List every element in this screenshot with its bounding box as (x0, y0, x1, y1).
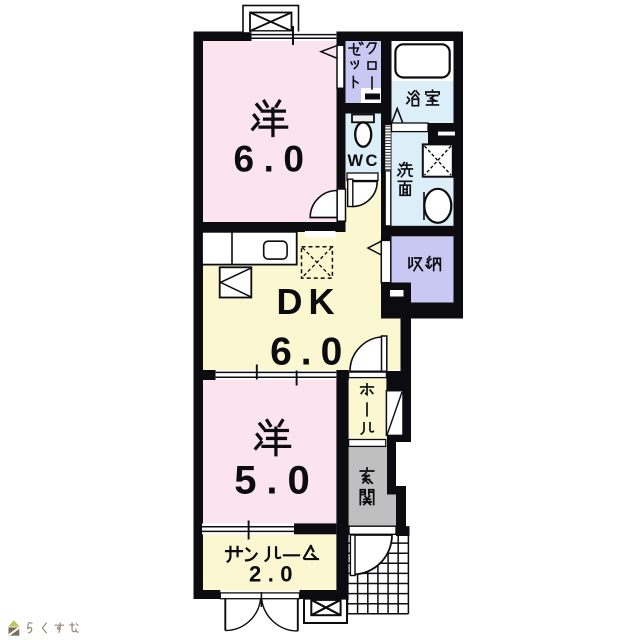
svg-text:6.0: 6.0 (270, 331, 351, 374)
svg-text:2.0: 2.0 (249, 562, 299, 587)
svg-text:DK: DK (277, 281, 341, 322)
svg-text:WC: WC (347, 152, 380, 170)
svg-text:6.0: 6.0 (234, 139, 314, 180)
svg-text:5.0: 5.0 (234, 458, 320, 502)
